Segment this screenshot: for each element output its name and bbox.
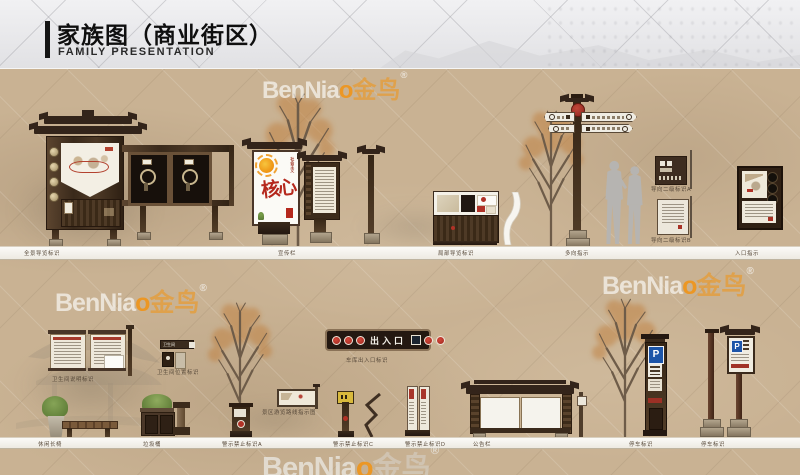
shrub <box>42 396 68 418</box>
parking-p-sign: P <box>731 340 743 353</box>
page-subtitle: FAMILY PRESENTATION <box>58 46 215 58</box>
slim-pole <box>368 155 374 233</box>
map-strip <box>433 191 499 217</box>
side-notice-panel <box>304 162 340 220</box>
label-parking-1: 停车标识 <box>629 441 653 447</box>
carved-band <box>61 199 121 227</box>
title-accent-bar <box>45 21 50 58</box>
label-route-map: 景区游览路线指示图 <box>262 409 316 415</box>
core-values-small-text: 社会主义 <box>290 157 296 173</box>
knocker-panel <box>170 152 212 206</box>
label-panoramic-guide: 全景导览标识 <box>24 250 60 256</box>
page-title: 家族图（商业街区） <box>57 16 273 50</box>
design-presentation-canvas: 家族图（商业街区） FAMILY PRESENTATION <box>0 0 800 475</box>
label-secondary-a: 导向二级标识A <box>651 186 691 192</box>
ground-band-row1 <box>0 246 800 260</box>
wood-base <box>433 215 499 243</box>
watermark: BenNiao金鸟® <box>55 283 206 319</box>
toilet-text: 卫生间 <box>163 342 175 348</box>
red-seal <box>286 208 293 218</box>
entrance-text: 出入口 <box>370 334 406 347</box>
label-notice: 公告栏 <box>473 441 491 447</box>
calligraphy-texture <box>544 2 794 66</box>
direction-blade-left <box>544 112 575 122</box>
watermark: BenNiao金鸟® <box>262 444 438 475</box>
label-bulletin: 宣传栏 <box>278 250 296 256</box>
entrance-guide-board <box>737 166 783 230</box>
label-trash: 垃圾桶 <box>143 441 161 447</box>
sprout <box>258 212 264 220</box>
info-icon <box>411 335 421 345</box>
label-toilet-info: 卫生间说明标识 <box>52 376 94 382</box>
ribbon-sculpture <box>498 192 525 245</box>
label-bench: 休闲长椅 <box>38 441 62 447</box>
label-entrance-guide: 入口指示 <box>735 250 759 256</box>
map-panel <box>61 143 119 197</box>
bent-pole-sculpture <box>362 393 382 437</box>
pole-cap <box>362 149 380 154</box>
arrow-chip <box>189 342 195 348</box>
label-multi-direction: 多向指示 <box>565 250 589 256</box>
label-warning-a: 警示禁止标识A <box>222 441 262 447</box>
page-header: 家族图（商业街区） FAMILY PRESENTATION <box>0 0 800 69</box>
watermark: BenNiao金鸟® <box>602 266 753 302</box>
watermark: BenNiao金鸟® <box>262 70 406 105</box>
core-values-poster: 社会主义 核心 <box>252 150 300 226</box>
label-parking-2: 停车标识 <box>701 441 725 447</box>
no-smoking-icon <box>356 336 365 345</box>
direction-blade-right <box>581 124 633 133</box>
label-local-guide: 局部导览标识 <box>438 250 474 256</box>
no-parking-icon <box>436 336 445 345</box>
label-toilet-location: 卫生间位置标识 <box>157 369 199 375</box>
parking-p-sign: P <box>648 346 664 364</box>
direction-blade-left <box>548 124 575 133</box>
no-honking-icon <box>424 336 433 345</box>
label-secondary-b: 导向二级标识B <box>651 237 691 243</box>
couple-silhouette <box>598 158 650 246</box>
no-entry-icon <box>332 336 341 345</box>
mini-map <box>742 171 767 198</box>
sign-body <box>46 136 124 230</box>
label-garage: 车库出入口标识 <box>346 357 388 363</box>
garage-entrance-sign: 出入口 <box>325 329 431 351</box>
no-entry-icon <box>344 336 353 345</box>
direction-blade-right <box>581 112 637 122</box>
sun-icon <box>259 158 274 173</box>
core-values-big-text: 核心 <box>259 172 296 203</box>
knocker-panel <box>128 152 170 206</box>
